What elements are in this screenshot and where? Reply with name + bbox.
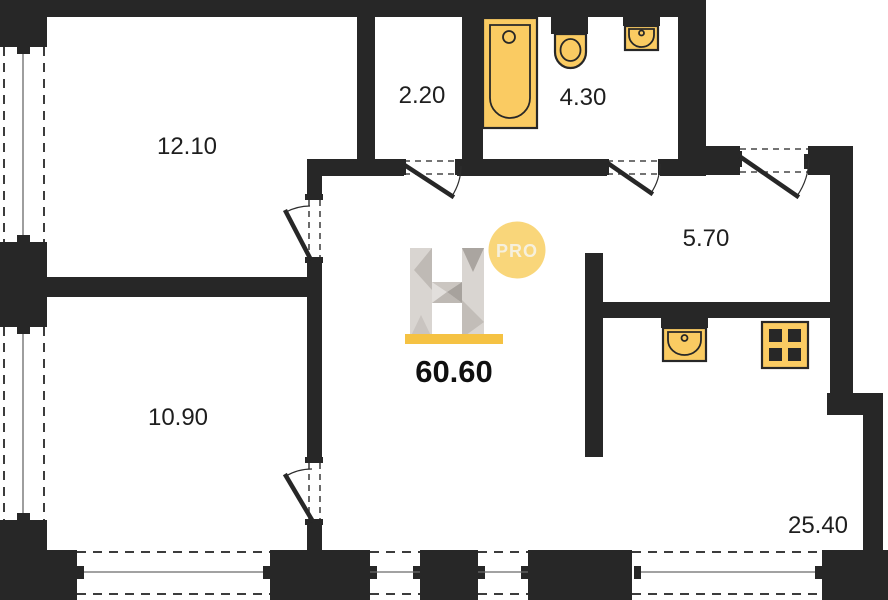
wall-segment bbox=[585, 253, 603, 457]
wall-segment bbox=[585, 302, 830, 318]
area-label-bathroom: 4.30 bbox=[560, 84, 607, 111]
bathtub-icon bbox=[483, 18, 537, 128]
kitchen-sink-icon bbox=[661, 318, 708, 361]
door-bedroom-1 bbox=[286, 194, 323, 263]
wall-segment bbox=[457, 159, 607, 176]
window-cap bbox=[420, 550, 425, 600]
wall-segment bbox=[307, 258, 322, 463]
door-storage bbox=[401, 159, 461, 196]
doors bbox=[286, 149, 810, 525]
area-label-bedroom-1: 12.10 bbox=[157, 133, 217, 160]
wall-segment bbox=[706, 146, 740, 175]
door-jamb bbox=[455, 159, 460, 175]
wall-segment bbox=[678, 0, 706, 176]
door-jamb bbox=[305, 194, 323, 200]
window-cap bbox=[72, 550, 77, 600]
door-swing-arc bbox=[286, 206, 310, 212]
door-bathroom bbox=[604, 159, 663, 193]
wall-segment bbox=[827, 550, 888, 600]
window-tab bbox=[263, 566, 270, 579]
window-tab bbox=[815, 566, 822, 579]
window-tab bbox=[17, 235, 30, 242]
window-cap bbox=[528, 550, 533, 600]
door-jamb bbox=[305, 457, 323, 463]
wall-segment bbox=[863, 410, 883, 555]
window-cap bbox=[0, 520, 47, 525]
total-area-label: 60.60 bbox=[415, 354, 493, 389]
stove-burner bbox=[769, 348, 782, 361]
logo-accent-bar bbox=[405, 334, 503, 344]
window-cap bbox=[365, 550, 370, 600]
brand-logo: PRO 60.60 bbox=[405, 222, 546, 390]
sink-backsplash bbox=[623, 17, 660, 26]
window-tab bbox=[17, 47, 30, 54]
toilet-tank bbox=[551, 17, 588, 34]
window-cap bbox=[270, 550, 275, 600]
wall-segment bbox=[0, 525, 47, 600]
wall-segment bbox=[462, 17, 483, 159]
bathtub-body bbox=[483, 18, 537, 128]
h-monogram-icon bbox=[405, 248, 503, 344]
wall-segment bbox=[307, 159, 404, 176]
wall-segment bbox=[0, 247, 47, 322]
door-opening bbox=[740, 149, 808, 172]
pro-badge-label: PRO bbox=[496, 241, 538, 261]
floor-plan-drawing: PRO 60.60 12.10 2.20 4.30 5.70 10.90 25.… bbox=[0, 0, 888, 600]
window-tab bbox=[17, 513, 30, 520]
area-label-kitchen-living: 25.40 bbox=[788, 512, 848, 539]
door-leaf bbox=[286, 212, 310, 258]
bathroom-sink-icon bbox=[623, 17, 660, 50]
window-cap bbox=[822, 550, 827, 600]
wall-segment bbox=[275, 550, 365, 600]
window-cap bbox=[0, 322, 47, 327]
door-leaf bbox=[286, 476, 312, 520]
area-label-bedroom-2: 10.90 bbox=[148, 404, 208, 431]
wall-segment bbox=[830, 146, 853, 398]
wall-segment bbox=[0, 0, 706, 17]
door-swing-arc bbox=[286, 469, 312, 476]
window-tab bbox=[77, 566, 84, 579]
window-cap bbox=[0, 242, 47, 247]
window-tab bbox=[634, 566, 641, 579]
wall-segment bbox=[47, 550, 72, 600]
door-leaf bbox=[406, 166, 452, 196]
toilet-icon bbox=[551, 17, 588, 68]
door-opening bbox=[309, 200, 320, 258]
kitchen-sink-backsplash bbox=[661, 318, 708, 328]
window-cap bbox=[627, 550, 632, 600]
wall-segment bbox=[0, 0, 47, 47]
wall-segment bbox=[357, 17, 375, 159]
wall-segment bbox=[533, 550, 627, 600]
stove-burner bbox=[788, 348, 801, 361]
entrance-door bbox=[736, 149, 810, 196]
window-cap bbox=[473, 550, 478, 600]
pro-badge: PRO bbox=[489, 222, 546, 279]
wall-segment bbox=[425, 550, 473, 600]
door-opening bbox=[309, 463, 320, 520]
door-leaf bbox=[609, 164, 651, 193]
floor-plan: PRO 60.60 12.10 2.20 4.30 5.70 10.90 25.… bbox=[0, 0, 888, 600]
area-label-storage: 2.20 bbox=[399, 82, 446, 109]
stove-burner bbox=[788, 329, 801, 342]
door-leaf bbox=[742, 158, 797, 196]
stove-body bbox=[762, 322, 808, 368]
stove-burner bbox=[769, 329, 782, 342]
window-cap bbox=[0, 42, 47, 47]
wall-segment bbox=[47, 277, 309, 297]
window-tab bbox=[17, 327, 30, 334]
stove-icon bbox=[762, 322, 808, 368]
area-label-entry-hall: 5.70 bbox=[683, 225, 730, 252]
door-bedroom-2 bbox=[286, 457, 323, 525]
